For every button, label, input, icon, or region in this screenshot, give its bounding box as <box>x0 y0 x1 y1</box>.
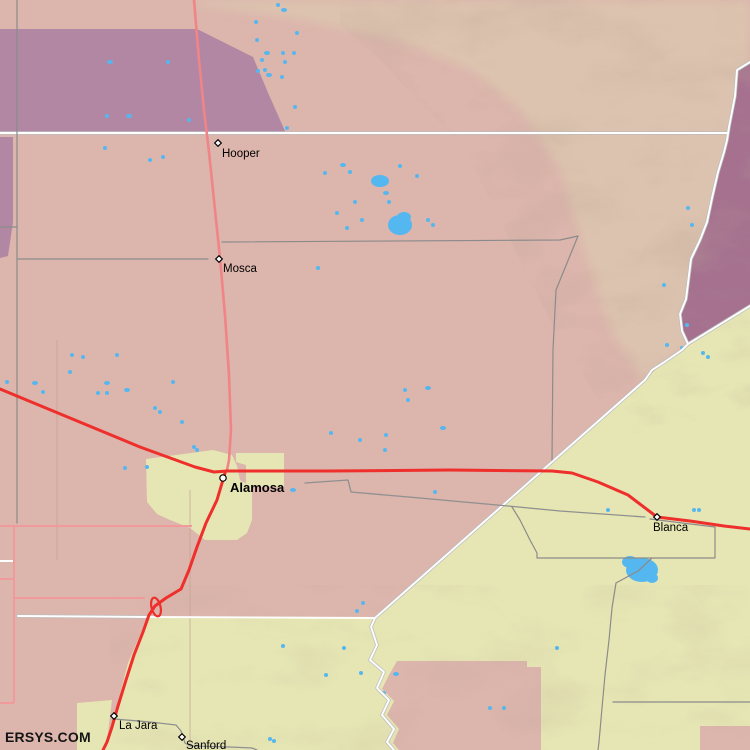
lake <box>145 465 149 469</box>
lake <box>426 218 430 222</box>
lake <box>345 226 349 230</box>
lake <box>96 391 100 395</box>
lake <box>606 508 610 512</box>
lake <box>371 175 389 187</box>
lake <box>295 31 299 35</box>
lake <box>342 646 346 650</box>
lake <box>195 448 199 452</box>
lake <box>292 51 296 55</box>
lake <box>166 60 170 64</box>
lake <box>383 448 387 452</box>
lake <box>68 370 72 374</box>
town-label-mosca: Mosca <box>223 263 257 275</box>
lake <box>153 406 157 410</box>
lake <box>123 466 127 470</box>
lake <box>397 212 411 222</box>
lake <box>665 343 669 347</box>
lake <box>32 381 38 385</box>
lake <box>685 323 689 327</box>
lake <box>361 601 365 605</box>
lake <box>431 223 435 227</box>
town-label-sanford: Sanford <box>186 740 226 750</box>
map-viewport: HooperMoscaAlamosaBlancaLa JaraSanford E… <box>0 0 750 750</box>
lake <box>692 508 696 512</box>
lake <box>293 105 297 109</box>
lake <box>124 388 130 392</box>
lake <box>329 431 333 435</box>
lake <box>355 609 359 613</box>
lake <box>105 391 109 395</box>
lake <box>488 706 492 710</box>
lake <box>701 351 705 355</box>
lake <box>360 218 364 222</box>
lake <box>283 60 287 64</box>
lake <box>103 146 107 150</box>
lake <box>415 174 419 178</box>
lake <box>264 51 270 55</box>
lake <box>690 223 694 227</box>
lake <box>280 75 284 79</box>
lake <box>276 3 280 7</box>
lake <box>406 398 410 402</box>
lake <box>268 737 272 741</box>
lake <box>281 8 287 12</box>
lake <box>697 508 701 512</box>
lake <box>158 410 162 414</box>
lake <box>148 158 152 162</box>
lake <box>646 573 658 583</box>
watermark-ersys: ERSYS.COM <box>5 729 91 745</box>
lake <box>393 672 399 676</box>
lake <box>335 211 339 215</box>
lake <box>433 490 437 494</box>
lake <box>171 380 175 384</box>
lake <box>70 353 74 357</box>
lake <box>126 114 132 118</box>
lake <box>266 73 272 77</box>
lake <box>387 200 391 204</box>
town-marker-alamosa[interactable] <box>220 475 226 481</box>
lake <box>403 388 407 392</box>
lake <box>358 438 362 442</box>
map-canvas[interactable]: HooperMoscaAlamosaBlancaLa JaraSanford <box>0 0 750 750</box>
lake <box>281 644 285 648</box>
lake <box>192 445 196 449</box>
lake <box>290 488 296 492</box>
lake <box>340 163 346 167</box>
lake <box>359 671 363 675</box>
lake <box>104 381 110 385</box>
town-label-la-jara: La Jara <box>119 720 158 732</box>
lake <box>256 69 260 73</box>
lake <box>353 200 357 204</box>
lake <box>263 68 267 72</box>
lake <box>316 266 320 270</box>
lake <box>398 164 402 168</box>
lake <box>502 706 506 710</box>
lake <box>555 646 559 650</box>
lake <box>348 170 352 174</box>
lake <box>706 355 710 359</box>
lake <box>161 155 165 159</box>
lake <box>81 355 85 359</box>
lake <box>115 353 119 357</box>
lake <box>260 58 264 62</box>
lake <box>440 426 446 430</box>
town-label-blanca: Blanca <box>653 522 689 534</box>
lake <box>254 20 258 24</box>
lake <box>425 386 431 390</box>
lake <box>5 380 9 384</box>
town-label-alamosa: Alamosa <box>230 480 285 495</box>
lake <box>107 60 113 64</box>
lake <box>323 171 327 175</box>
lake <box>383 191 389 195</box>
lake <box>662 283 666 287</box>
lake <box>180 420 184 424</box>
lake <box>285 126 289 130</box>
lake <box>105 114 109 118</box>
lake <box>272 739 276 743</box>
lake <box>41 390 45 394</box>
lake <box>187 118 191 122</box>
lake <box>384 433 388 437</box>
lake <box>255 38 259 42</box>
lake <box>324 673 328 677</box>
lake <box>686 206 690 210</box>
lake <box>281 51 285 55</box>
town-label-hooper: Hooper <box>222 148 260 160</box>
